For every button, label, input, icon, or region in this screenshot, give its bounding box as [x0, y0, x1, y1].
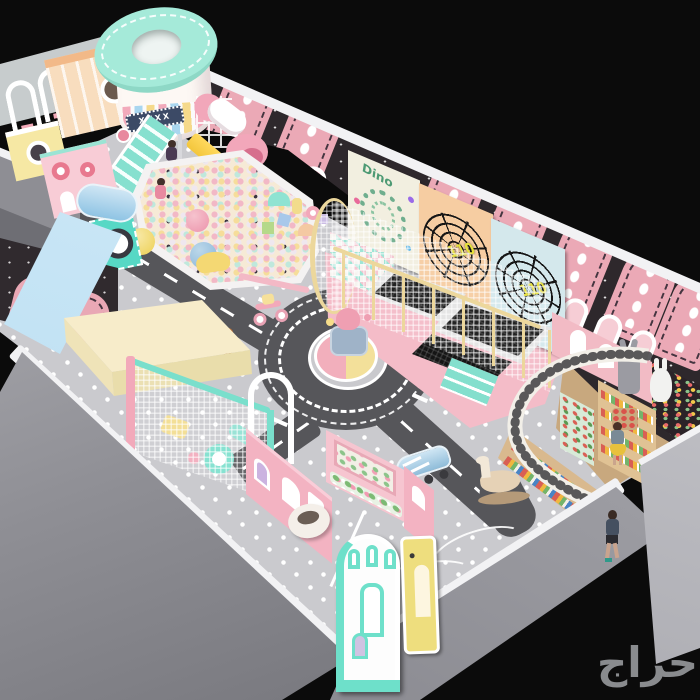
mint-arch-doorway	[336, 534, 400, 692]
donut-decor	[50, 160, 72, 182]
fence-post	[342, 250, 345, 308]
plush-doll	[618, 348, 640, 394]
shop-wall-arch	[570, 330, 586, 354]
yellow-doorway	[400, 535, 440, 654]
fence-post	[402, 274, 405, 332]
indoor-playground-3d-render: XXXX Dino	[0, 0, 700, 700]
playhouse-window	[412, 482, 425, 511]
toy-ball	[364, 314, 371, 321]
watermark-text: حراج	[548, 638, 698, 694]
child-in-ball-pit	[155, 178, 167, 200]
foam-arch-block	[268, 192, 290, 206]
foam-cylinder-block	[292, 198, 302, 214]
toy-ball	[326, 318, 334, 326]
fence-post	[548, 330, 551, 388]
fence-post	[522, 320, 525, 378]
child-figure	[166, 140, 178, 162]
fence-post	[462, 297, 465, 355]
big-ball-pink	[186, 209, 209, 232]
foam-cube-block	[262, 222, 274, 234]
arch-niche	[59, 190, 77, 213]
donut-decor	[79, 161, 97, 179]
roundabout-toy-dome	[336, 308, 360, 330]
shop-wall-arch	[598, 344, 614, 368]
net-enclosure-post	[126, 356, 135, 456]
fence-post	[372, 262, 375, 320]
roundabout-toy-drum	[330, 326, 368, 356]
fence-post	[492, 308, 495, 366]
rabbit-figure	[650, 368, 672, 402]
shopkeeper-figure	[608, 422, 628, 466]
visitor-figure	[602, 510, 624, 574]
playhouse-window	[254, 454, 270, 491]
fence-post	[432, 286, 435, 344]
